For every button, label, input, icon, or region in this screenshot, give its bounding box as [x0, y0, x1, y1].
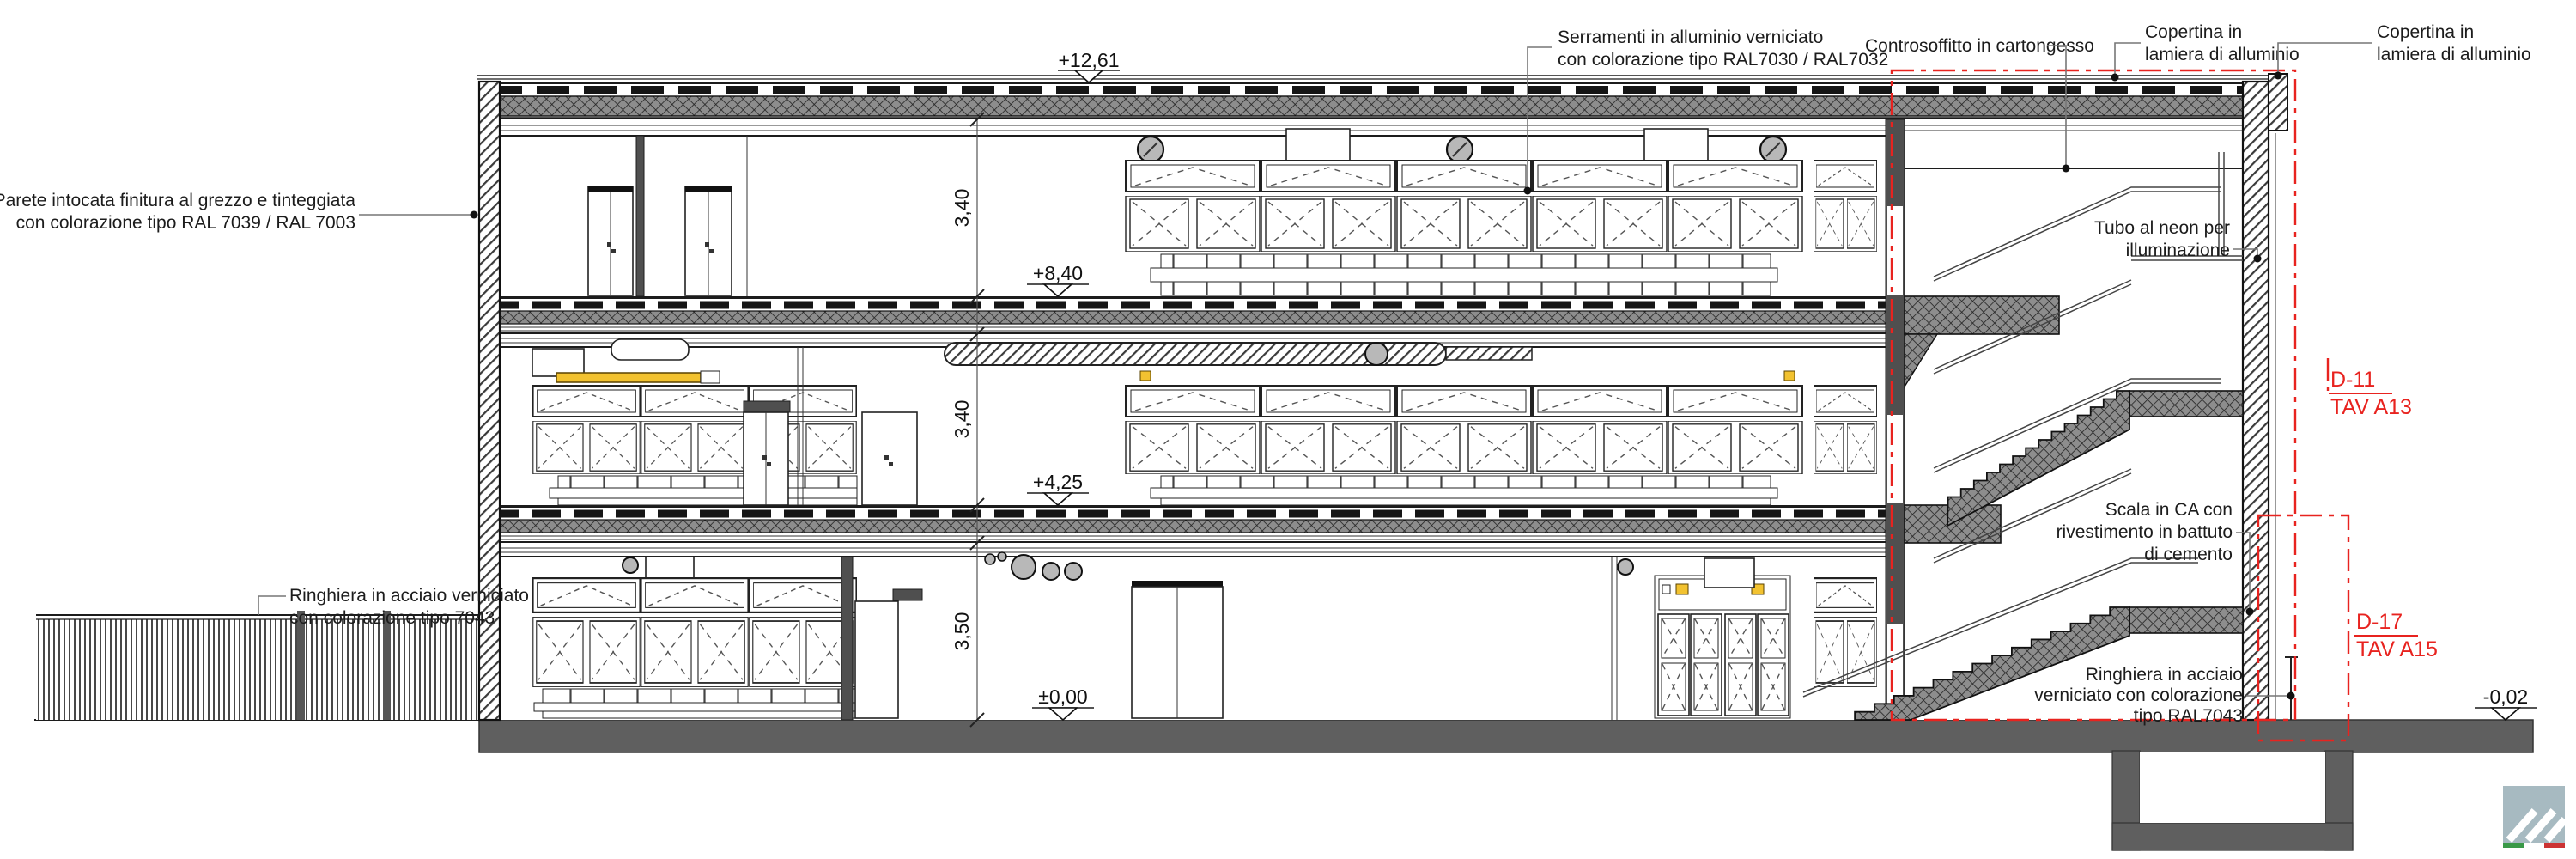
window-bay: [1814, 578, 1876, 612]
landing-slab: [1905, 296, 2059, 334]
architectural-section-drawing: 3,40 3,40 3,50 +12,61 +8,40 +4,25 ±0,00 …: [0, 0, 2576, 859]
slab-425: [489, 505, 1905, 543]
note-copertina-dx: Copertina in lamiera di alluminio: [2275, 22, 2531, 80]
door-set: [862, 412, 917, 505]
window-wall-right: [1126, 386, 1802, 505]
ground: [34, 720, 2533, 850]
detail-box-d17: [2258, 515, 2348, 740]
svg-text:Ringhiera in acciaio verniciat: Ringhiera in acciaio verniciato: [289, 586, 529, 606]
door: [855, 601, 898, 718]
flag-red: [2544, 843, 2565, 848]
svg-text:lamiera di alluminio: lamiera di alluminio: [2377, 45, 2531, 64]
svg-text:rivestimento in battuto: rivestimento in battuto: [2057, 522, 2233, 542]
svg-text:con colorazione tipo RAL7030 /: con colorazione tipo RAL7030 / RAL7032: [1558, 50, 1888, 70]
window-bay: [1814, 196, 1876, 252]
door-header: [744, 401, 790, 412]
parapet: [2269, 74, 2287, 131]
neon-fixture: [556, 373, 701, 382]
ceiling-light: [1760, 137, 1786, 162]
svg-text:di cemento: di cemento: [2144, 545, 2233, 564]
small-fixture: [1676, 584, 1688, 594]
ceiling-light: [1447, 137, 1473, 162]
svg-text:Copertina in: Copertina in: [2145, 22, 2242, 42]
flag-white: [2524, 843, 2544, 848]
pit: [2112, 751, 2353, 850]
svg-text:±0,00: ±0,00: [1038, 685, 1087, 708]
svg-text:TAV A15: TAV A15: [2356, 637, 2438, 661]
fixture-end: [701, 371, 720, 383]
duct-end: [611, 339, 689, 360]
svg-text:+4,25: +4,25: [1033, 471, 1083, 493]
ceiling-box: [1704, 558, 1754, 588]
detail-ref-d11: D-11 TAV A13: [2329, 368, 2412, 419]
ceiling-box: [532, 349, 584, 376]
level-roof: +12,61: [1058, 49, 1120, 82]
svg-text:lamiera di alluminio: lamiera di alluminio: [2145, 45, 2300, 64]
svg-text:illuminazione: illuminazione: [2126, 241, 2230, 260]
svg-text:+8,40: +8,40: [1033, 262, 1083, 284]
note-copertina-sx: Copertina in lamiera di alluminio: [2111, 22, 2300, 82]
svg-text:tipo RAL7043: tipo RAL7043: [2134, 706, 2243, 726]
ceiling-light: [1138, 137, 1163, 162]
window-wall-left: [533, 578, 857, 718]
ceiling-light: [623, 557, 638, 573]
svg-text:con colorazione tipo 7043: con colorazione tipo 7043: [289, 608, 495, 628]
ceiling-light: [1365, 343, 1388, 365]
door-set: [744, 412, 788, 505]
svg-text:-0,02: -0,02: [2483, 685, 2528, 708]
door-set-mid: [1132, 581, 1223, 718]
small-fixture: [1784, 371, 1795, 381]
partition-wall: [841, 557, 853, 720]
svg-text:TAV A13: TAV A13: [2330, 395, 2412, 419]
svg-text:Parete intocata finitura al gr: Parete intocata finitura al grezzo e tin…: [0, 191, 355, 210]
slab-840: [489, 296, 1905, 334]
entrance-doors: [1655, 558, 1790, 718]
roof-slab: [477, 76, 2277, 119]
section-canvas: 3,40 3,40 3,50 +12,61 +8,40 +4,25 ±0,00 …: [0, 0, 2576, 859]
svg-text:Tubo al neon per: Tubo al neon per: [2094, 218, 2230, 238]
svg-text:D-11: D-11: [2330, 368, 2375, 392]
window-wall-left: [533, 386, 857, 505]
exterior-wall-right: [2243, 74, 2287, 720]
svg-text:con colorazione tipo RAL 7039: con colorazione tipo RAL 7039 / RAL 7003: [16, 213, 355, 233]
window-bay: [1814, 161, 1876, 192]
window-wall: [1126, 161, 1802, 295]
svg-text:Serramenti in alluminio vernic: Serramenti in alluminio verniciato: [1558, 27, 1823, 47]
half-landing: [2129, 391, 2243, 417]
svg-text:Ringhiera in acciaio: Ringhiera in acciaio: [2086, 665, 2243, 685]
window-bay: [1814, 421, 1876, 474]
detail-ref-d17: D-17 TAV A15: [2354, 610, 2438, 661]
dim-floor1: 3,40: [951, 400, 973, 439]
door-set: [685, 186, 732, 295]
note-parete: Parete intocata finitura al grezzo e tin…: [0, 191, 478, 233]
ceiling-light: [1618, 559, 1633, 575]
wall-stub: [893, 589, 922, 600]
half-landing: [2129, 607, 2243, 633]
window-bay: [1814, 617, 1876, 687]
studio-logo: [2503, 786, 2565, 848]
ceiling-box: [1286, 129, 1350, 165]
small-fixture: [1140, 371, 1151, 381]
svg-text:+12,61: +12,61: [1059, 49, 1120, 71]
svg-text:Scala in CA con: Scala in CA con: [2105, 500, 2233, 520]
flag-green: [2503, 843, 2524, 848]
svg-text:D-17: D-17: [2356, 610, 2403, 634]
svg-text:Copertina in: Copertina in: [2377, 22, 2474, 42]
window-bay: [1814, 386, 1876, 417]
svg-text:verniciato con colorazione: verniciato con colorazione: [2034, 685, 2243, 705]
partition-wall: [636, 136, 644, 296]
level-exterior: -0,02: [2475, 685, 2537, 720]
dim-floor2: 3,40: [951, 189, 973, 228]
stairwell-left-wall: [1886, 119, 1905, 720]
dim-ground: 3,50: [951, 612, 973, 651]
door-set: [588, 186, 633, 295]
ceiling-box: [1644, 129, 1708, 165]
